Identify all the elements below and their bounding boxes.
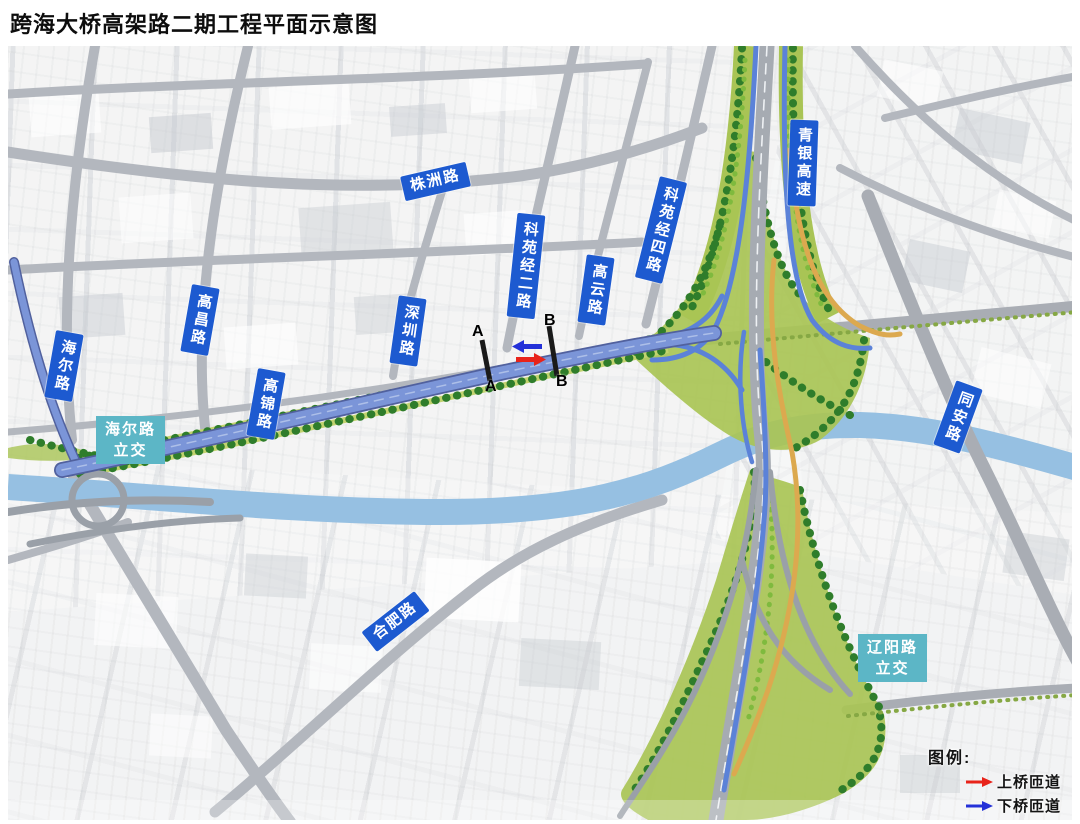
legend: 图例: 上桥匝道 下桥匝道 <box>928 744 1061 816</box>
map-drawing <box>8 46 1072 820</box>
down-ramp-arrow-icon <box>512 340 542 353</box>
map-title: 跨海大桥高架路二期工程平面示意图 <box>10 7 378 39</box>
legend-item-down-ramp: 下桥匝道 <box>966 795 1061 816</box>
plan-schematic-page: 跨海大桥高架路二期工程平面示意图 <box>0 0 1080 824</box>
legend-down-ramp-arrow-icon <box>966 800 994 812</box>
section-marker-a-top: A <box>472 323 484 341</box>
legend-item-label: 上桥匝道 <box>997 771 1061 792</box>
bottom-fade <box>8 800 1072 820</box>
interchange-label-haier-line1: 海尔路 <box>105 419 156 440</box>
plan-map <box>8 46 1072 820</box>
legend-title: 图例: <box>928 744 1061 768</box>
road-label-qingyin: 青银高速 <box>788 120 819 207</box>
section-marker-a-bottom: A <box>485 378 497 396</box>
interchange-label-haier: 海尔路 立交 <box>96 416 165 464</box>
section-marker-b-top: B <box>544 312 556 330</box>
legend-item-label: 下桥匝道 <box>997 795 1061 816</box>
section-marker-b-bottom: B <box>556 373 568 391</box>
legend-item-up-ramp: 上桥匝道 <box>966 771 1061 792</box>
interchange-label-liaoyang: 辽阳路 立交 <box>858 634 927 682</box>
interchange-label-haier-line2: 立交 <box>105 440 156 461</box>
interchange-label-liaoyang-line2: 立交 <box>867 658 918 679</box>
interchange-label-liaoyang-line1: 辽阳路 <box>867 637 918 658</box>
legend-up-ramp-arrow-icon <box>966 776 994 788</box>
